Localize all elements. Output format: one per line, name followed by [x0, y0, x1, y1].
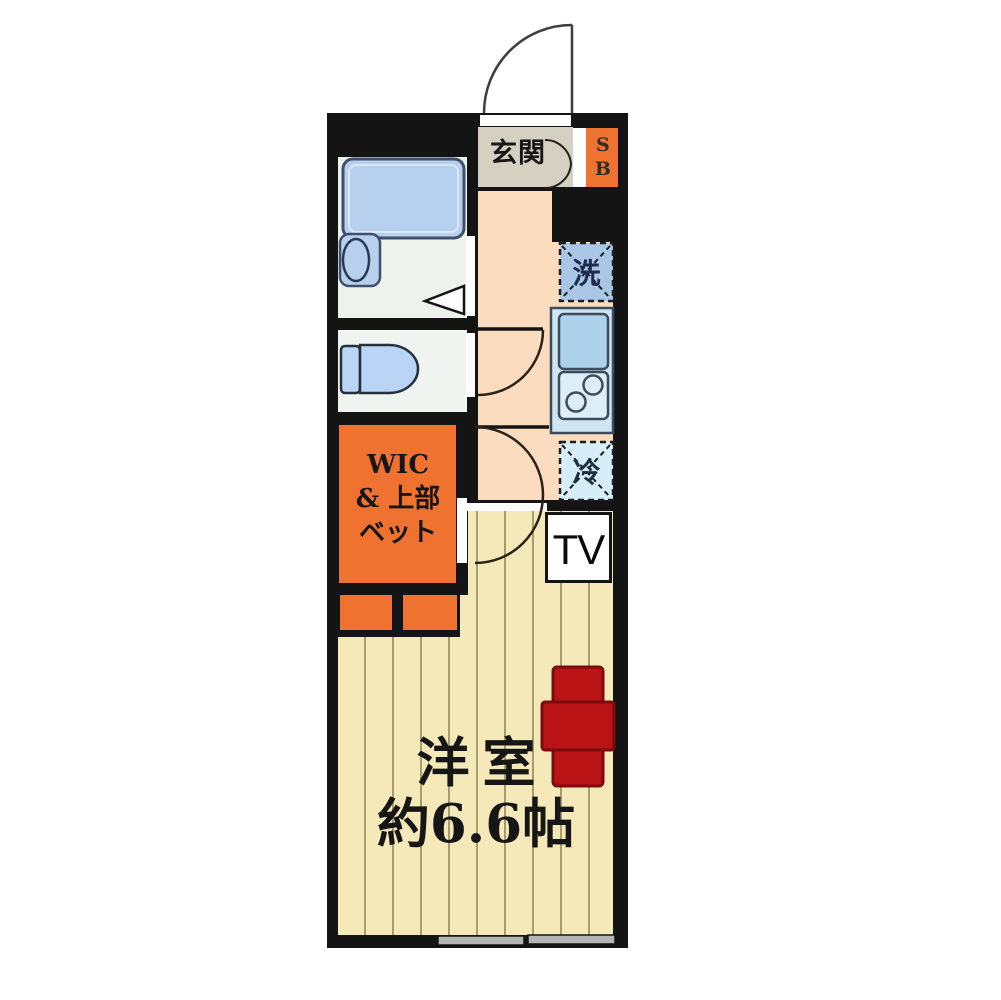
- toilet-floor: [338, 330, 467, 412]
- closet-label-line3: ベット: [339, 517, 457, 551]
- entrance-label: 玄関: [478, 137, 558, 171]
- closet-door-opening: [457, 498, 467, 563]
- wall-below-shoebox: [552, 188, 628, 242]
- main-room-name: 洋室: [338, 733, 614, 794]
- main-room-size: 約6.6帖: [338, 794, 614, 855]
- bathroom-door-opening: [466, 236, 475, 316]
- loft-step-2: [403, 595, 457, 630]
- toilet-door-opening: [466, 333, 475, 397]
- floor-plan: 玄関 SB 洗 冷 TV WIC & 上部 ベット 洋室 約6.6帖: [0, 0, 1001, 1000]
- washer-label: 洗: [560, 256, 613, 291]
- entrance-door-opening: [480, 115, 571, 126]
- shoebox-divider: [573, 128, 586, 187]
- tv-label: TV: [545, 524, 612, 577]
- closet-label-line2: & 上部: [339, 483, 457, 517]
- bathroom-floor: [338, 157, 467, 318]
- main-room-label: 洋室 約6.6帖: [338, 733, 614, 855]
- closet-label: WIC & 上部 ベット: [339, 449, 457, 550]
- entrance-door-arc: [484, 25, 572, 113]
- closet-label-line1: WIC: [339, 449, 457, 483]
- loft-step-1: [340, 595, 392, 630]
- room-door-opening: [467, 503, 547, 511]
- shoebox-label: SB: [586, 130, 618, 186]
- fridge-label: 冷: [560, 455, 613, 490]
